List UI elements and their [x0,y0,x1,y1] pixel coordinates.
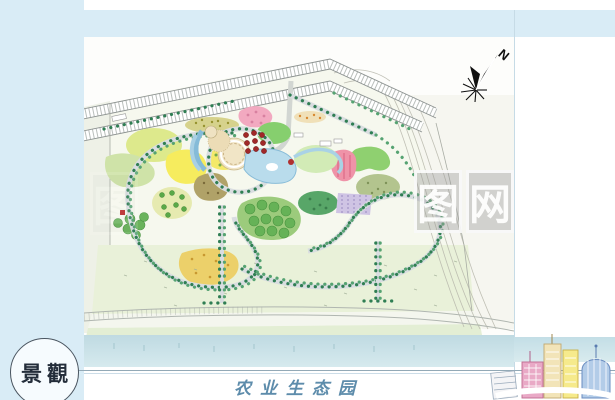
city-skyline-sketch [486,326,615,400]
page-title: 农业生态园 [84,374,514,399]
landscape-seal: 景觀 [10,338,79,400]
top-frame-band [84,10,615,37]
seal-text: 景觀 [16,358,73,388]
watermark-box-tu: 图 [414,170,462,233]
north-arrow-compass: N [446,40,518,102]
north-label: N [496,46,513,64]
presentation-page: 图 图 网 N 景觀 农业生态园 [0,0,615,400]
watermark-box-faint: 图 [90,172,138,235]
watermark-box-wang: 网 [466,170,514,233]
